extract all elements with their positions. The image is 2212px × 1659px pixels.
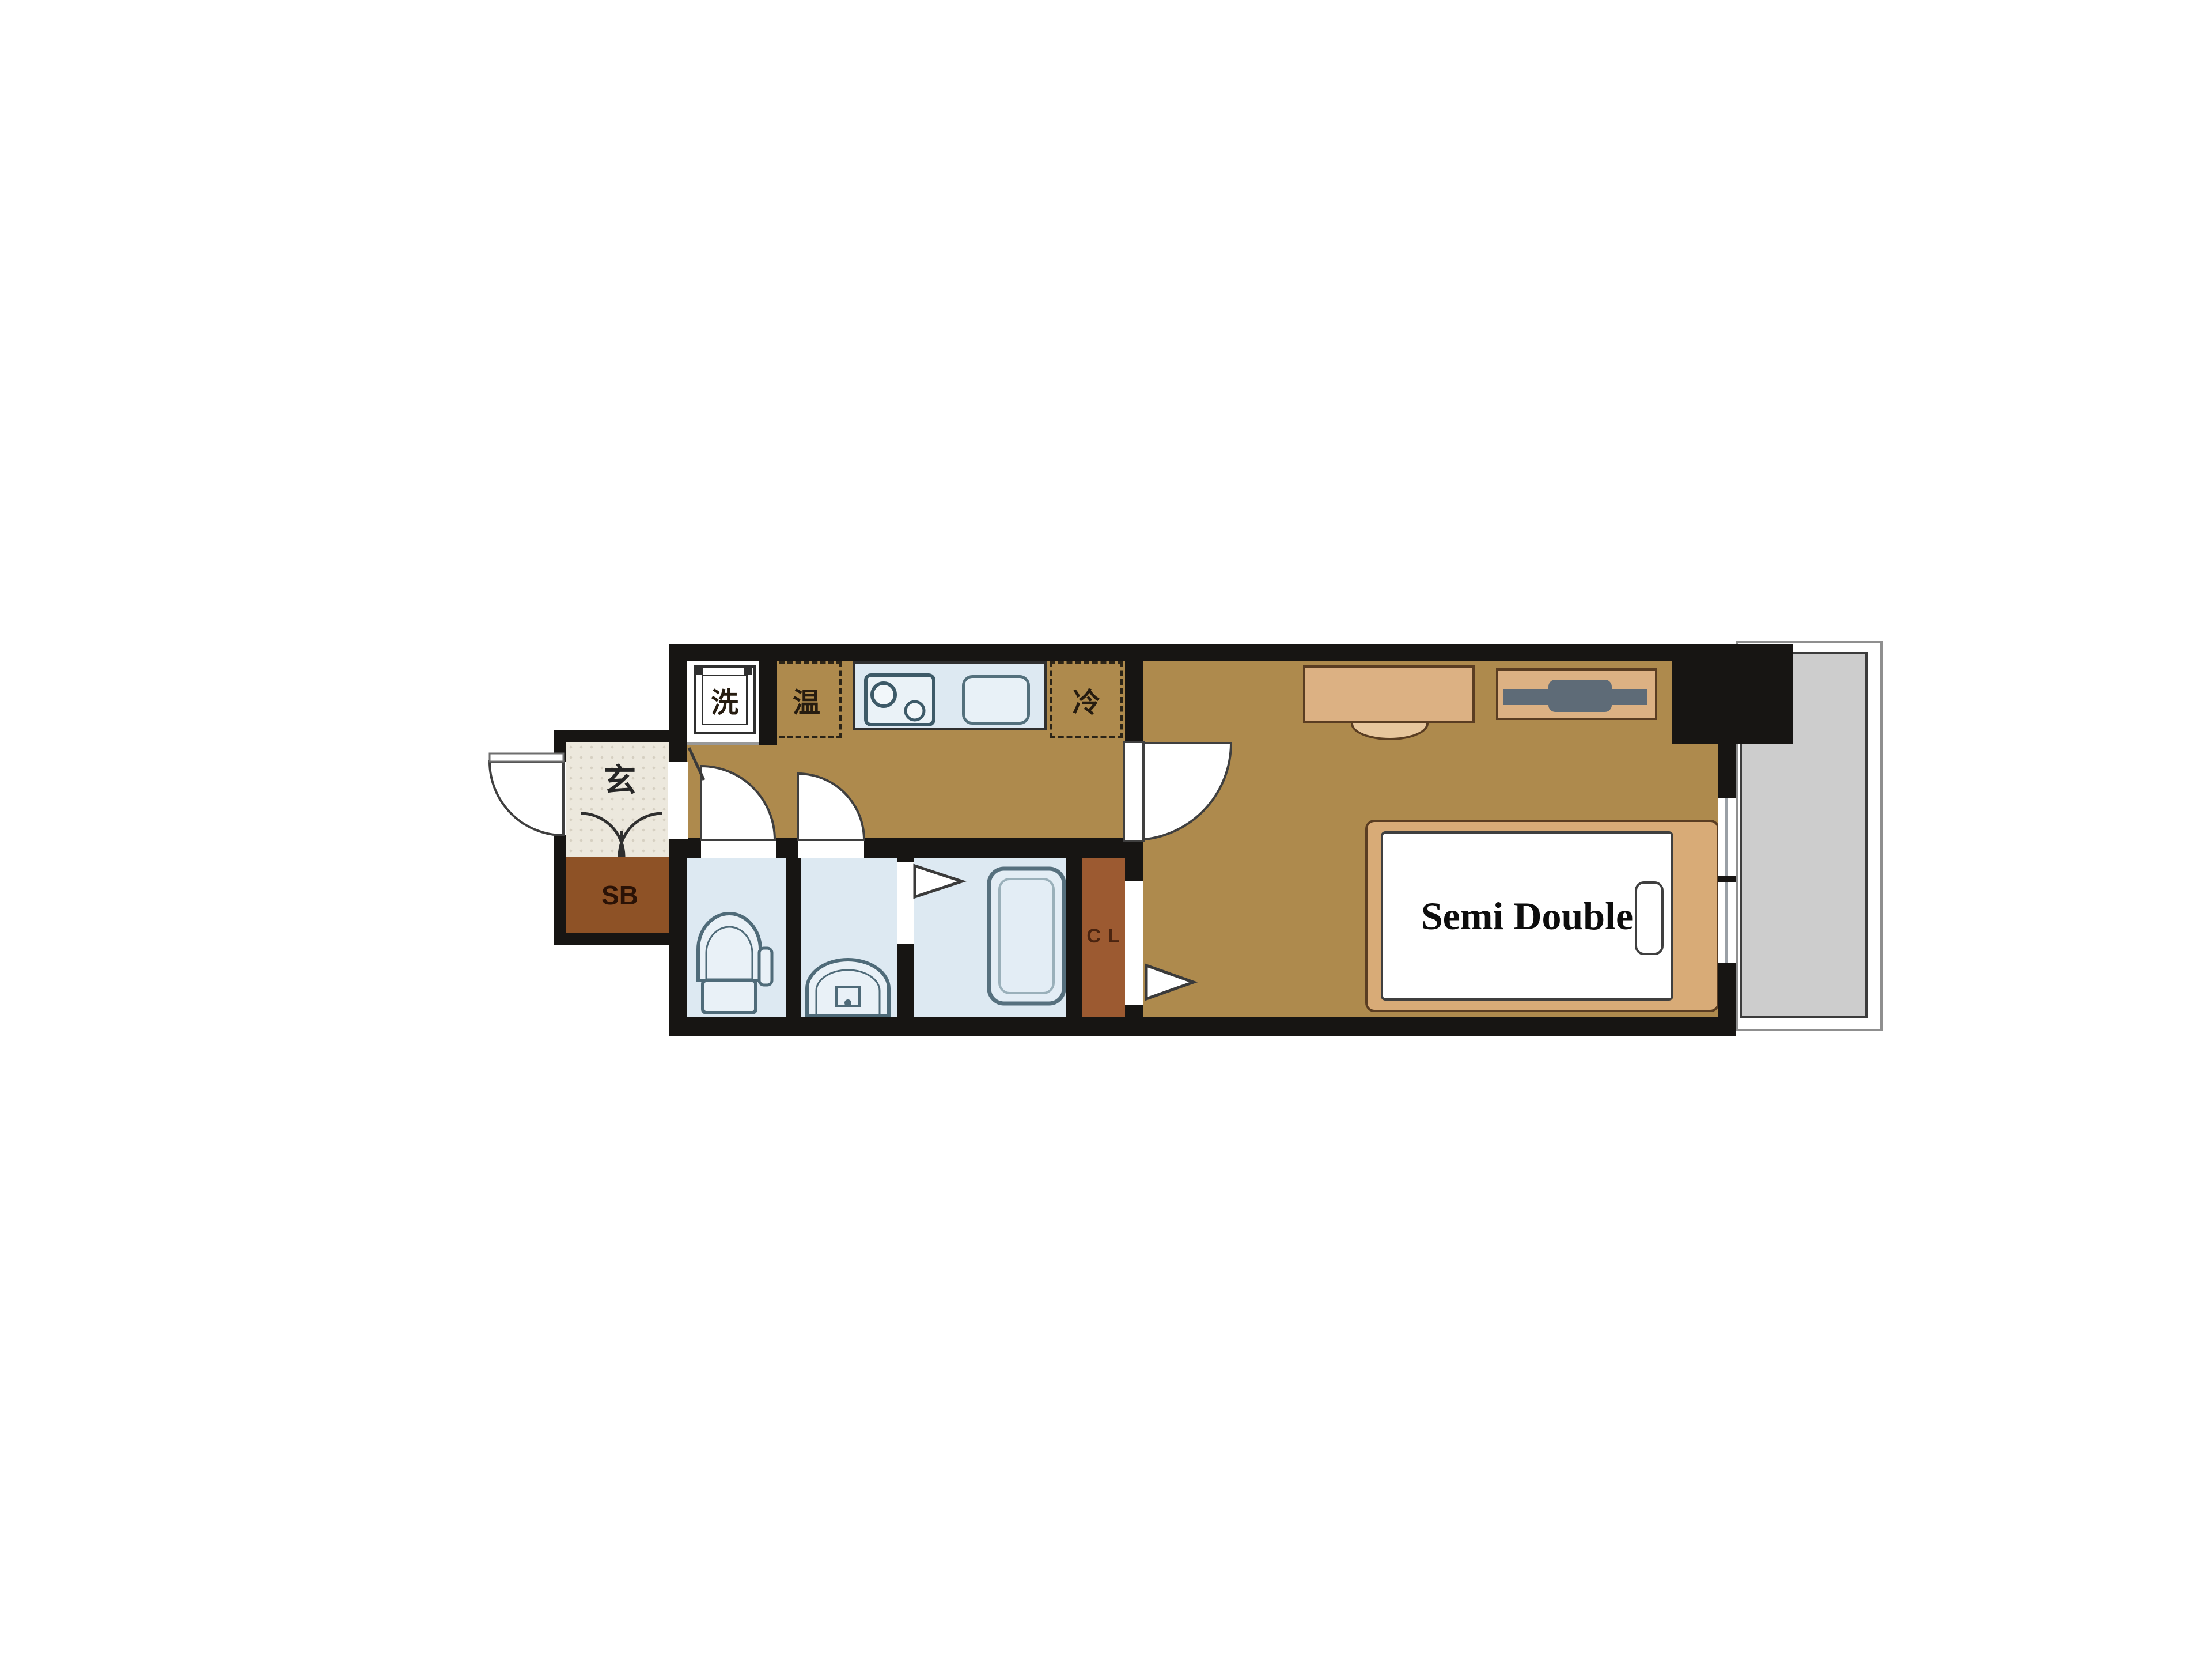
wall-hall-a: [687, 838, 701, 858]
entrance-hall-opening: [668, 762, 688, 839]
front-door-leaf: [490, 753, 563, 762]
sink-icon: [962, 675, 1030, 725]
refrigerator-label: 冷: [1050, 661, 1123, 738]
wall-toilet-washbasin: [786, 858, 801, 1017]
shoe-box-label: SB: [566, 857, 674, 933]
wall-partition-upper: [1125, 661, 1143, 743]
toilet-door-opening: [701, 838, 776, 858]
wall-top: [669, 644, 1736, 661]
front-door-swing: [490, 762, 563, 835]
washer-room-step-line: [687, 742, 759, 745]
tv-center: [1548, 680, 1612, 712]
bath-folding-door: [897, 862, 914, 944]
window-upper: [1718, 798, 1736, 876]
window-lower: [1718, 882, 1736, 963]
bathroom: [914, 858, 1066, 1017]
closet-sliding-door: [1125, 881, 1143, 1005]
front-door-opening: [554, 762, 566, 835]
washing-machine-label: 洗: [694, 665, 756, 734]
toilet-room: [687, 858, 786, 1017]
wall-bottom: [669, 1017, 1736, 1036]
stove-icon: [864, 673, 935, 726]
washbasin-door-opening: [798, 838, 864, 858]
bed-size-label: Semi Double: [1381, 831, 1673, 1001]
wall-partition-lower: [1125, 1005, 1143, 1017]
washbasin-room: [801, 858, 897, 1017]
closet-label: CL: [1077, 913, 1129, 959]
pillar: [1672, 644, 1793, 744]
wall-hall-b: [776, 838, 798, 858]
entrance-label: 玄: [566, 749, 674, 806]
water-heater-label: 温: [771, 661, 842, 738]
wall-left-upper: [669, 644, 687, 762]
floor-plan: CL 玄 SB 温 冷 洗 Semi Double: [0, 0, 2212, 1659]
desk: [1303, 665, 1475, 723]
wall-hall-c: [864, 838, 1143, 858]
